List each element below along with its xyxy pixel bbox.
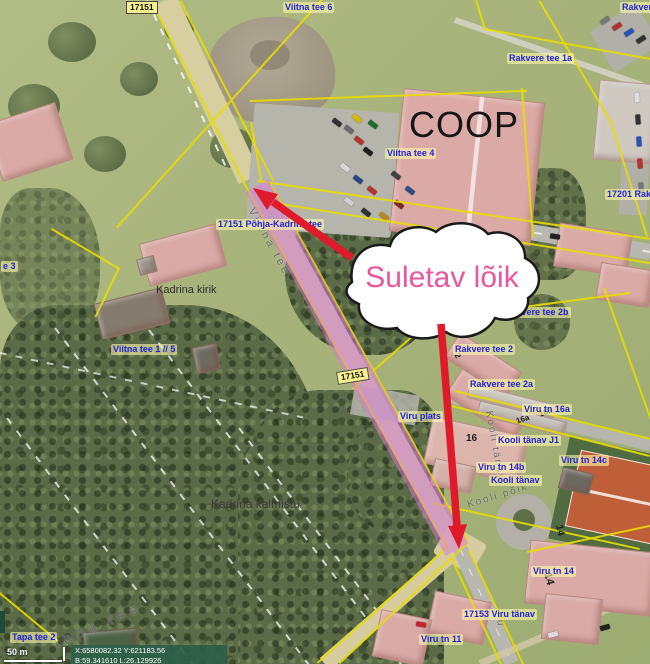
label-tapa-tee-2: Tapa tee 2 — [10, 632, 57, 643]
building-rakvere-2b-annex — [595, 262, 650, 308]
tree-cluster — [84, 136, 126, 172]
car — [637, 158, 643, 168]
label-viru-tn-11: Viru tn 11 — [419, 634, 463, 645]
scale-label: 50 m — [7, 647, 28, 658]
label-viitna-tee-1-5: Viitna tee 1 // 5 — [111, 344, 177, 355]
label-kadrina-kalmistu: Kadrina kalmistu — [211, 498, 300, 510]
label-rakvere-tee-2b: Rakvere tee 2b — [503, 307, 571, 318]
label-viitna-tee-4: Viitna tee 4 — [385, 148, 436, 159]
label-17153-viru-tanav: 17153 Viru tänav — [462, 609, 537, 620]
map-canvas[interactable]: Viitna tee Tapa tee Kooli tänav Kooli põ… — [0, 0, 650, 664]
tree-cluster — [120, 62, 158, 96]
car — [634, 92, 640, 102]
parcel-number: 14 — [554, 524, 565, 537]
label-viru-tn-14c: Viru tn 14c — [559, 455, 609, 466]
label-rakvere-clipped: Rakvere — [620, 2, 650, 13]
scale-bar-line — [4, 660, 62, 662]
label-viitna-tee-6: Viitna tee 6 — [283, 2, 334, 13]
scale-bar-tick — [63, 647, 65, 661]
label-viru-tn-14b: Viru tn 14b — [476, 462, 526, 473]
building-shed — [191, 343, 221, 375]
label-viru-tn-16a: Viru tn 16a — [522, 404, 572, 415]
label-viru-plats: Viru plats — [398, 411, 443, 422]
coordinates-readout: X:6580082.32 Y:621183.56 B:59.341610 L:2… — [71, 645, 227, 664]
label-viru-tn-14: Viru tn 14 — [531, 566, 576, 577]
label-rakvere-tee-2: Rakvere tee 2 — [453, 344, 515, 355]
car — [600, 624, 611, 631]
label-kooli-tanav: Kooli tänav — [489, 475, 542, 486]
closed-section-label: Suletav lõik — [356, 261, 528, 295]
label-kooli-tanav-j1: Kooli tänav J1 — [496, 435, 561, 446]
label-rakvere-tee-1a: Rakvere tee 1a — [507, 53, 574, 64]
label-kadrina-kirik: Kadrina kirik — [156, 284, 217, 296]
coordinates-bl: B:59.341610 L:26.129926 — [75, 656, 223, 664]
cadastral-line — [603, 288, 650, 421]
coop-store-sign: COOP — [409, 106, 519, 144]
label-viitna-tee-3-clipped: e 3 — [1, 261, 18, 272]
label-rakvere-tee-2a: Rakvere tee 2a — [468, 379, 535, 390]
road-number-badge-17151-top: 17151 — [126, 1, 158, 14]
car — [636, 136, 642, 146]
toolbar-corner-chip — [0, 611, 5, 633]
car — [635, 114, 641, 124]
parcel-number: 16 — [466, 434, 477, 443]
label-pohja-kadrina-tee: 17151 Põhja-Kadrina tee — [216, 219, 324, 230]
tree-cluster — [48, 22, 96, 62]
label-17201-rakvere-clipped: 17201 Rakve — [605, 189, 650, 200]
coordinates-xy: X:6580082.32 Y:621183.56 — [75, 646, 223, 656]
